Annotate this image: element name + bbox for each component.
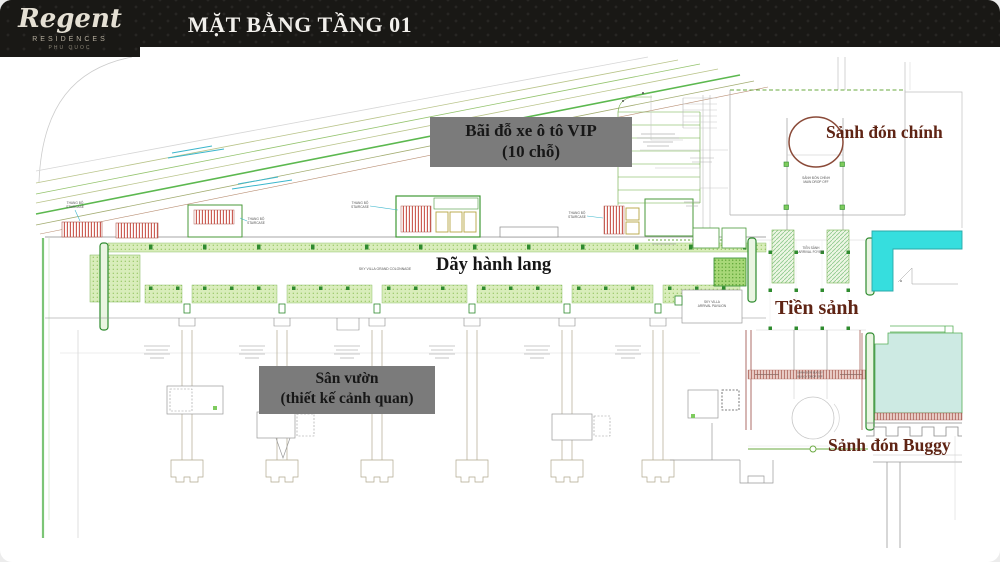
floor-plan-drawing: THANG BỘ STAIRCASE THANG BỘ STAIRCASE TH… bbox=[0, 0, 1000, 562]
callout-garden: Sân vườn (thiết kế cảnh quan) bbox=[259, 366, 435, 414]
regent-logo: Regent RESIDENCES PHU QUOC bbox=[0, 0, 140, 57]
buggy-court bbox=[746, 330, 868, 452]
callout-buggy-hall: Sảnh đón Buggy bbox=[828, 435, 951, 456]
lower-pool bbox=[875, 333, 962, 413]
svg-text:STAIRCASE: STAIRCASE bbox=[351, 205, 369, 209]
svg-text:ARRIVAL PAVILION: ARRIVAL PAVILION bbox=[698, 304, 727, 308]
header-bar: MẶT BẰNG TẦNG 01 bbox=[0, 0, 1000, 47]
upper-pool bbox=[872, 231, 962, 291]
garden-line1: Sân vườn bbox=[259, 369, 435, 389]
pool-edge-hatch bbox=[873, 413, 962, 420]
vip-parking-line1: Bãi đỗ xe ô tô VIP bbox=[430, 120, 632, 141]
logo-wordmark: Regent bbox=[0, 2, 140, 36]
buggy-turnaround-circle bbox=[792, 397, 834, 439]
svg-text:BUGGY DROP OFF: BUGGY DROP OFF bbox=[797, 375, 823, 379]
buggy-drop-annotation: SẢNH ĐÓN BUGGY BUGGY DROP OFF bbox=[797, 370, 823, 379]
callout-vip-parking: Bãi đỗ xe ô tô VIP (10 chỗ) bbox=[430, 117, 632, 167]
svg-text:STAIRCASE: STAIRCASE bbox=[568, 215, 586, 219]
colonnade-annotation: SKY VILLA GRAND COLONNADE bbox=[359, 267, 412, 271]
site-left-edge bbox=[43, 238, 78, 538]
callout-main-arrival-hall: Sảnh đón chính bbox=[826, 122, 943, 143]
stair-cores bbox=[62, 196, 693, 238]
colonnade-strip bbox=[45, 227, 766, 330]
walkway-label-marks bbox=[144, 346, 641, 358]
svg-text:STAIRCASE: STAIRCASE bbox=[66, 205, 84, 209]
vip-parking-line2: (10 chỗ) bbox=[430, 141, 632, 162]
garden-pavilions bbox=[167, 386, 773, 483]
pool-side-wall bbox=[866, 333, 874, 430]
svg-text:STAIRCASE: STAIRCASE bbox=[247, 221, 265, 225]
logo-residences: RESIDENCES bbox=[0, 36, 140, 44]
plaza-west-structures bbox=[640, 95, 728, 206]
garden-line2: (thiết kế cảnh quan) bbox=[259, 389, 435, 409]
main-drop-annotation: SẢNH ĐÓN CHÍNH MAIN DROP OFF bbox=[802, 175, 831, 184]
floor-plan-slide: THANG BỘ STAIRCASE THANG BỘ STAIRCASE TH… bbox=[0, 0, 1000, 562]
upper-pool-details bbox=[898, 268, 958, 284]
main-arrival-plaza bbox=[730, 57, 962, 230]
callout-foyer: Tiền sảnh bbox=[775, 297, 859, 320]
svg-text:MAIN DROP OFF: MAIN DROP OFF bbox=[803, 180, 828, 184]
svg-text:ARRIVAL FOYER: ARRIVAL FOYER bbox=[798, 250, 824, 254]
callout-corridor: Dãy hành lang bbox=[436, 255, 551, 276]
logo-location: PHU QUOC bbox=[0, 45, 140, 52]
page-title: MẶT BẰNG TẦNG 01 bbox=[100, 12, 500, 38]
